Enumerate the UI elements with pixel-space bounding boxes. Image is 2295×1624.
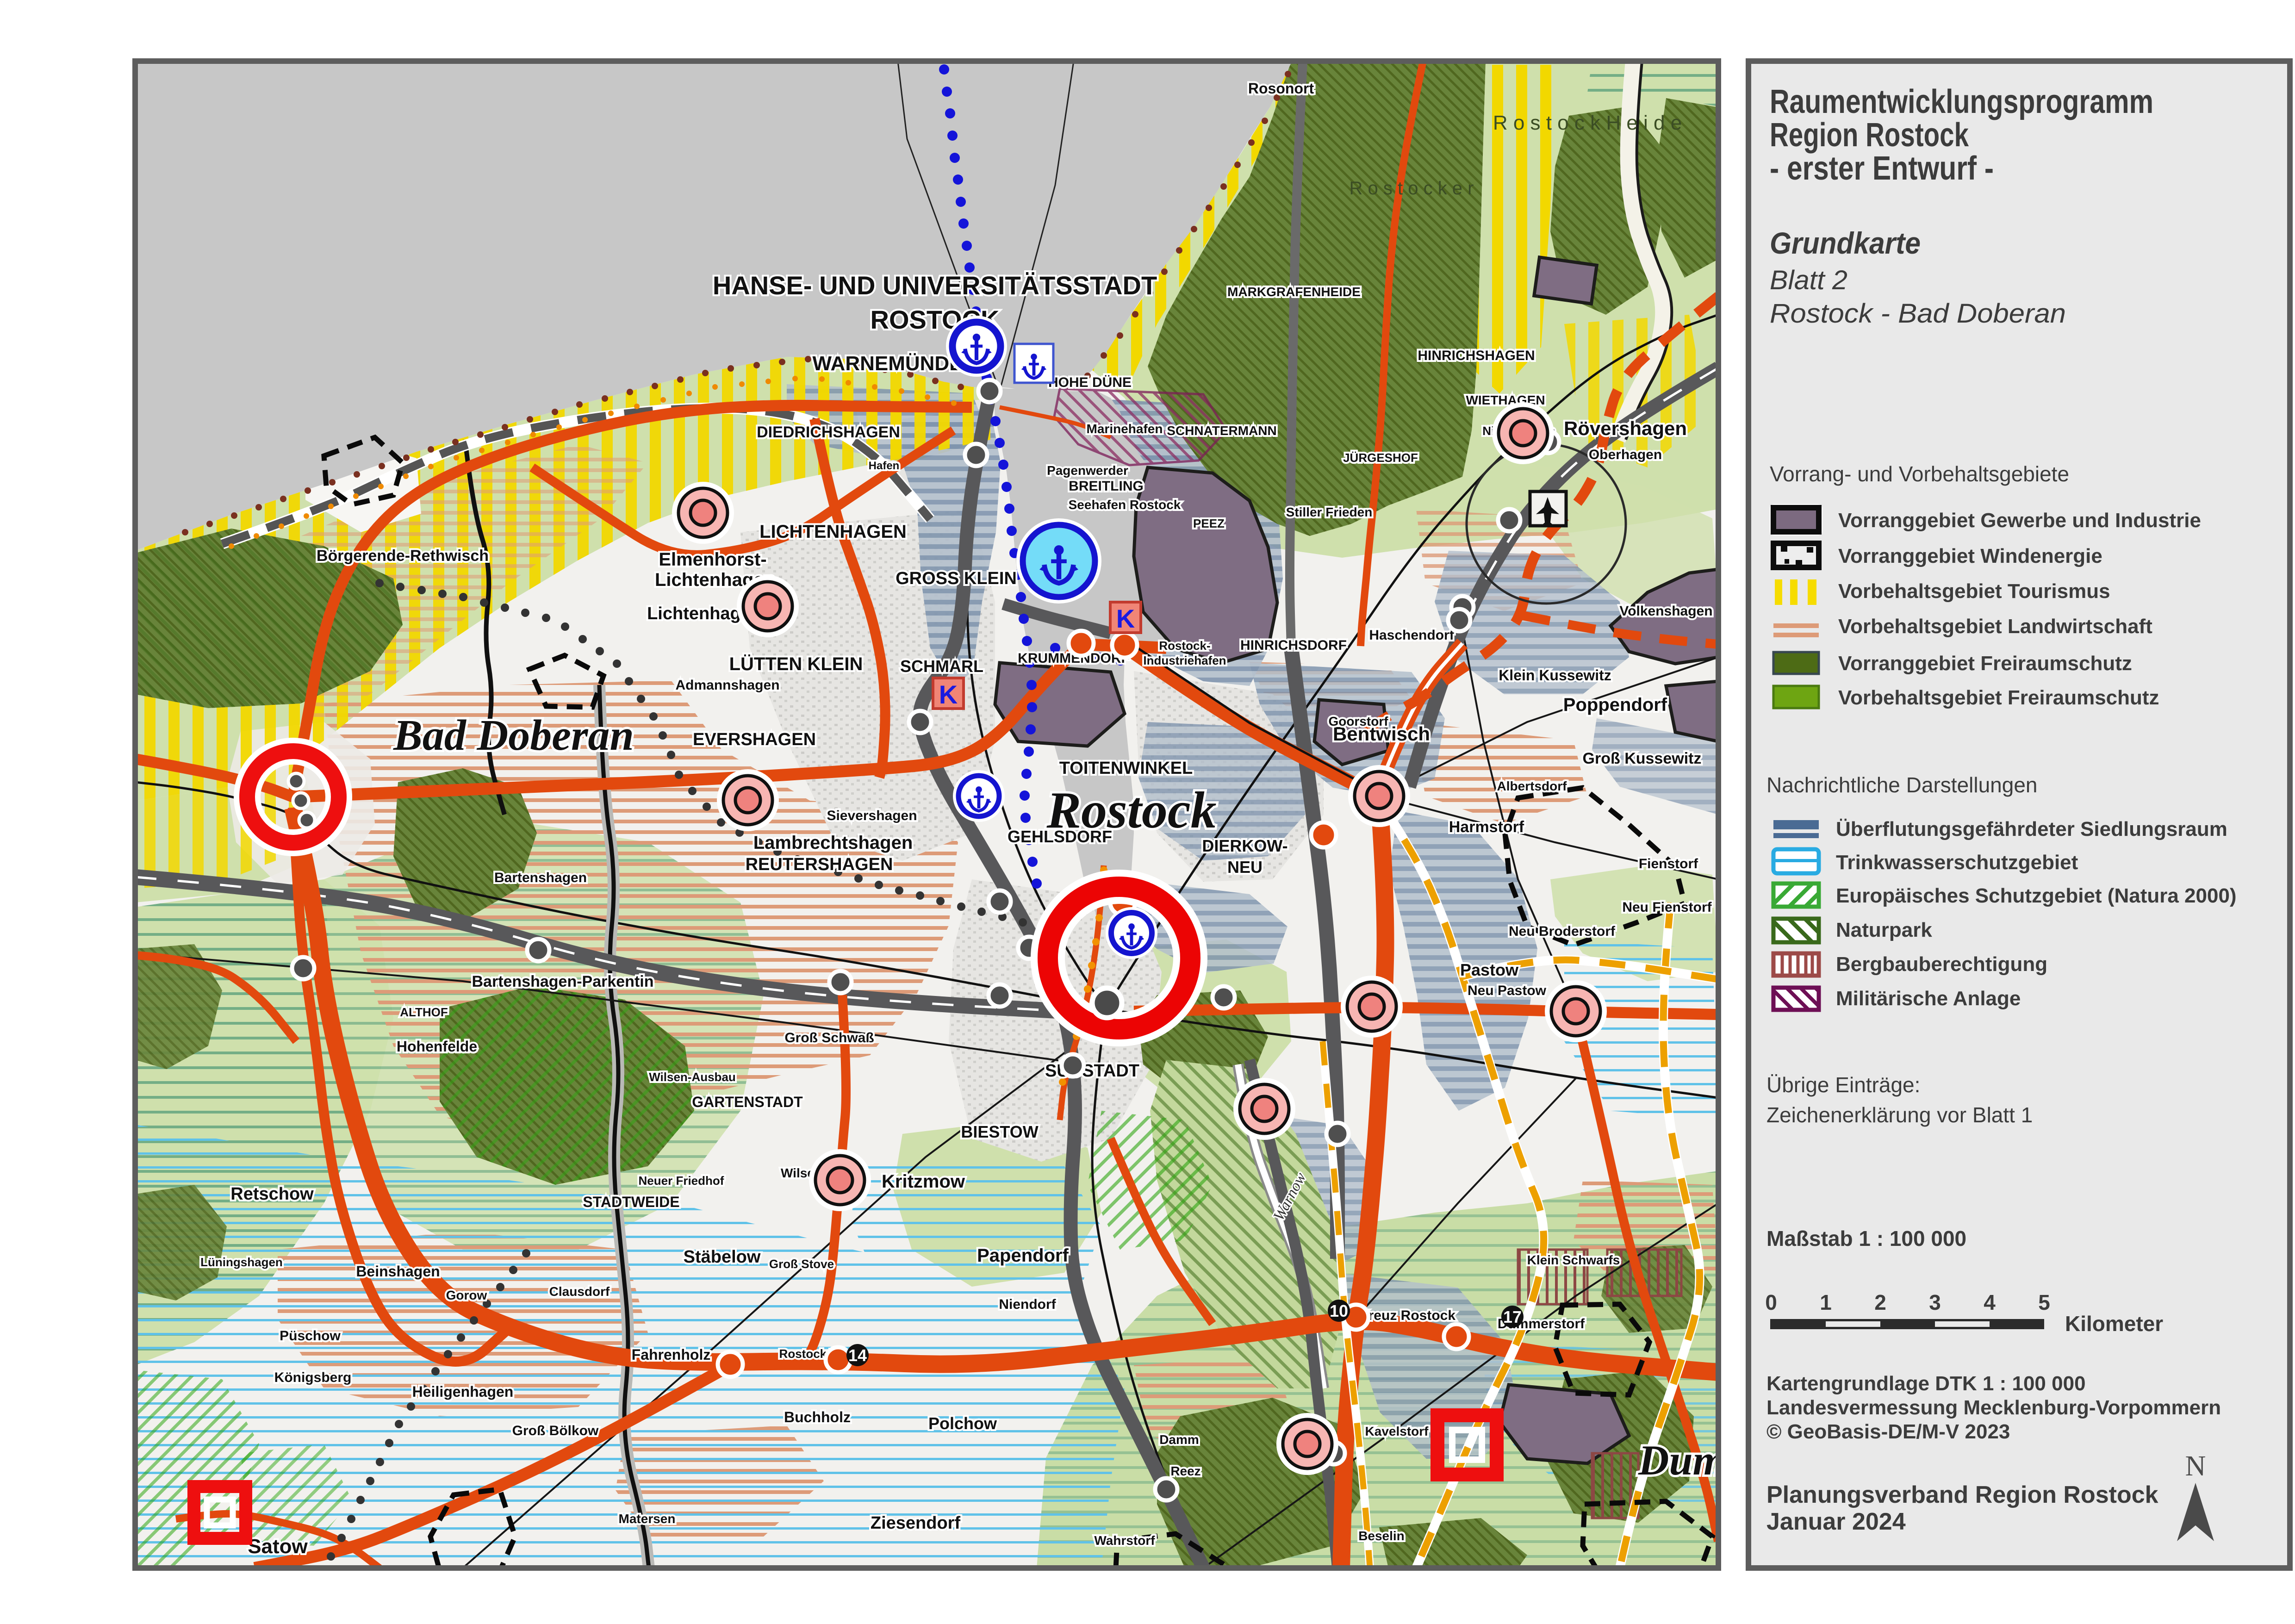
svg-text:BREITLING: BREITLING: [1069, 479, 1144, 494]
svg-text:ALTHOF: ALTHOF: [400, 1005, 448, 1019]
svg-text:0: 0: [1765, 1290, 1777, 1314]
svg-text:Vorbehaltsgebiet Freiraumschut: Vorbehaltsgebiet Freiraumschutz: [1838, 686, 2159, 709]
svg-text:Poppendorf: Poppendorf: [1563, 695, 1667, 715]
svg-text:Bartenshagen: Bartenshagen: [494, 870, 587, 885]
svg-text:Planungsverband Region Rostock: Planungsverband Region Rostock: [1766, 1481, 2158, 1508]
svg-text:2: 2: [1874, 1290, 1886, 1314]
svg-text:Fienstorf: Fienstorf: [1639, 856, 1698, 871]
svg-text:Januar 2024: Januar 2024: [1766, 1508, 1906, 1535]
svg-text:Kavelstorf: Kavelstorf: [1365, 1424, 1429, 1438]
svg-text:Haschendorf: Haschendorf: [1369, 628, 1454, 643]
svg-text:Ziesendorf: Ziesendorf: [871, 1513, 961, 1533]
svg-text:Reez: Reez: [1170, 1464, 1200, 1478]
svg-text:Industriehafen: Industriehafen: [1143, 653, 1226, 667]
svg-text:Stiller Frieden: Stiller Frieden: [1286, 505, 1373, 519]
svg-text:Militärische Anlage: Militärische Anlage: [1836, 987, 2021, 1010]
svg-text:Zeichenerklärung vor Blatt 1: Zeichenerklärung vor Blatt 1: [1766, 1103, 2033, 1127]
svg-text:HINRICHSDORF: HINRICHSDORF: [1240, 638, 1347, 653]
svg-text:Region Rostock: Region Rostock: [1770, 117, 1969, 154]
svg-text:LICHTENHAGEN: LICHTENHAGEN: [759, 522, 907, 542]
svg-text:Fahrenholz: Fahrenholz: [632, 1346, 711, 1363]
svg-text:Vorranggebiet Gewerbe und Indu: Vorranggebiet Gewerbe und Industrie: [1838, 509, 2201, 532]
svg-text:Albertsdorf: Albertsdorf: [1497, 779, 1567, 793]
svg-text:N: N: [2185, 1450, 2206, 1482]
svg-text:Polchow: Polchow: [928, 1414, 997, 1433]
svg-text:Wilsen-Ausbau: Wilsen-Ausbau: [649, 1070, 736, 1084]
svg-text:Kritzmow: Kritzmow: [882, 1171, 965, 1192]
svg-text:Papendorf: Papendorf: [977, 1245, 1069, 1266]
svg-text:Europäisches Schutzgebiet (Nat: Europäisches Schutzgebiet (Natura 2000): [1836, 884, 2237, 907]
svg-text:WARNEMÜNDE: WARNEMÜNDE: [812, 352, 963, 375]
svg-text:17: 17: [1503, 1307, 1522, 1326]
svg-text:- erster Entwurf -: - erster Entwurf -: [1770, 150, 1994, 187]
svg-text:Bergbauberechtigung: Bergbauberechtigung: [1836, 953, 2047, 976]
svg-text:Buchholz: Buchholz: [784, 1409, 851, 1425]
svg-text:Pagenwerder: Pagenwerder: [1047, 463, 1128, 478]
svg-text:GEHLSDORF: GEHLSDORF: [1008, 827, 1112, 846]
svg-text:NEU: NEU: [1227, 858, 1263, 877]
svg-text:Lüningshagen: Lüningshagen: [200, 1255, 283, 1269]
svg-text:Goorstorf: Goorstorf: [1328, 714, 1388, 728]
svg-text:Groß Kussewitz: Groß Kussewitz: [1583, 750, 1702, 767]
svg-text:10: 10: [1330, 1301, 1348, 1320]
svg-text:DIEDRICHSHAGEN: DIEDRICHSHAGEN: [757, 423, 900, 441]
svg-text:Seehafen Rostock: Seehafen Rostock: [1069, 498, 1181, 512]
svg-text:Marinehafen: Marinehafen: [1087, 422, 1163, 436]
svg-text:Landesvermessung Mecklenburg-V: Landesvermessung Mecklenburg-Vorpommern: [1766, 1396, 2221, 1419]
svg-text:K: K: [939, 680, 958, 709]
svg-text:© GeoBasis-DE/M-V 2023: © GeoBasis-DE/M-V 2023: [1766, 1420, 2010, 1443]
svg-text:HINRICHSHAGEN: HINRICHSHAGEN: [1418, 348, 1535, 363]
svg-text:Püschow: Püschow: [280, 1328, 341, 1344]
svg-text:5: 5: [2038, 1290, 2050, 1314]
svg-text:Vorbehaltsgebiet Tourismus: Vorbehaltsgebiet Tourismus: [1838, 580, 2110, 603]
svg-text:Vorbehaltsgebiet Landwirtschaf: Vorbehaltsgebiet Landwirtschaft: [1838, 615, 2152, 638]
svg-text:DIERKOW-: DIERKOW-: [1202, 836, 1287, 855]
svg-text:Pastow: Pastow: [1460, 960, 1519, 979]
svg-text:MARKGRAFENHEIDE: MARKGRAFENHEIDE: [1227, 285, 1361, 299]
svg-text:K: K: [1116, 604, 1135, 633]
svg-text:Rövershagen: Rövershagen: [1564, 417, 1687, 439]
svg-text:Elmenhorst-: Elmenhorst-: [659, 549, 766, 570]
svg-text:Rostock-: Rostock-: [1159, 639, 1210, 653]
svg-text:Hohenfelde: Hohenfelde: [397, 1038, 477, 1055]
svg-text:Übrige Einträge:: Übrige Einträge:: [1766, 1073, 1920, 1097]
svg-text:R o s t o c k e r: R o s t o c k e r: [1350, 178, 1474, 199]
svg-text:Klein Kussewitz: Klein Kussewitz: [1499, 667, 1611, 684]
svg-text:PEEZ: PEEZ: [1193, 516, 1225, 530]
svg-text:Kartengrundlage DTK 1 : 100 0: Kartengrundlage DTK 1 : 100 000: [1766, 1372, 2086, 1395]
svg-text:R o s t o c k H e i d e: R o s t o c k H e i d e: [1493, 112, 1682, 134]
svg-text:Raumentwicklungsprogramm: Raumentwicklungsprogramm: [1770, 83, 2153, 120]
svg-text:LÜTTEN KLEIN: LÜTTEN KLEIN: [729, 653, 863, 674]
svg-text:Vorrang- und Vorbehaltsgebiete: Vorrang- und Vorbehaltsgebiete: [1770, 462, 2069, 486]
svg-text:Bad Doberan: Bad Doberan: [393, 711, 634, 759]
svg-text:Naturpark: Naturpark: [1836, 919, 1932, 941]
svg-text:GARTENSTADT: GARTENSTADT: [692, 1094, 803, 1110]
svg-text:Sievershagen: Sievershagen: [827, 808, 917, 823]
svg-text:Bartenshagen-Parkentin: Bartenshagen-Parkentin: [472, 973, 654, 990]
svg-text:Neu Fienstorf: Neu Fienstorf: [1622, 900, 1712, 915]
svg-text:Kilometer: Kilometer: [2065, 1312, 2163, 1336]
svg-text:Groß Bölkow: Groß Bölkow: [512, 1423, 599, 1438]
svg-text:JÜRGESHOF: JÜRGESHOF: [1343, 451, 1418, 465]
svg-text:Clausdorf: Clausdorf: [549, 1284, 610, 1299]
svg-text:STADTWEIDE: STADTWEIDE: [583, 1194, 679, 1210]
svg-text:Neuer Friedhof: Neuer Friedhof: [639, 1174, 724, 1188]
svg-text:Nachrichtliche Darstellungen: Nachrichtliche Darstellungen: [1766, 773, 2038, 797]
svg-text:Blatt 2: Blatt 2: [1770, 265, 1847, 295]
svg-text:Beselin: Beselin: [1358, 1529, 1405, 1543]
svg-text:Rostock - Bad Doberan: Rostock - Bad Doberan: [1770, 299, 2066, 329]
svg-text:REUTERSHAGEN: REUTERSHAGEN: [746, 855, 893, 874]
svg-text:Grundkarte: Grundkarte: [1770, 226, 1921, 260]
svg-text:Beinshagen: Beinshagen: [356, 1263, 440, 1280]
svg-text:Volkenshagen: Volkenshagen: [1619, 604, 1712, 619]
svg-text:Maßstab 1 : 100 000: Maßstab 1 : 100 000: [1766, 1226, 1966, 1251]
svg-text:Retschow: Retschow: [230, 1184, 314, 1204]
svg-text:Oberhagen: Oberhagen: [1589, 447, 1662, 462]
svg-text:Überflutungsgefährdeter Siedlu: Überflutungsgefährdeter Siedlungsraum: [1836, 818, 2227, 840]
svg-text:Neu Pastow: Neu Pastow: [1468, 983, 1547, 998]
svg-text:Trinkwasserschutzgebiet: Trinkwasserschutzgebiet: [1836, 851, 2078, 874]
svg-text:3: 3: [1929, 1290, 1941, 1314]
svg-text:Groß Schwaß: Groß Schwaß: [784, 1030, 874, 1045]
svg-text:TOITENWINKEL: TOITENWINKEL: [1059, 759, 1193, 778]
svg-text:HANSE- UND UNIVERSITÄTSSTADT: HANSE- UND UNIVERSITÄTSSTADT: [713, 271, 1157, 300]
svg-text:Niendorf: Niendorf: [999, 1297, 1056, 1312]
svg-text:BIESTOW: BIESTOW: [961, 1122, 1038, 1141]
svg-text:1: 1: [1820, 1290, 1832, 1314]
svg-text:Königsberg: Königsberg: [274, 1370, 352, 1385]
svg-text:Neu Broderstorf: Neu Broderstorf: [1509, 924, 1616, 939]
svg-text:Damm: Damm: [1159, 1432, 1199, 1447]
svg-text:Satow: Satow: [248, 1535, 308, 1558]
svg-text:SÜDSTADT: SÜDSTADT: [1045, 1061, 1139, 1081]
svg-text:4: 4: [1984, 1290, 1996, 1314]
svg-text:Wahrstorf: Wahrstorf: [1094, 1533, 1155, 1548]
svg-text:14: 14: [848, 1346, 867, 1365]
svg-text:Matersen: Matersen: [619, 1512, 676, 1526]
svg-text:SCHMARL: SCHMARL: [900, 657, 983, 676]
svg-text:Rosonort: Rosonort: [1248, 80, 1314, 97]
svg-text:Vorranggebiet Windenergie: Vorranggebiet Windenergie: [1838, 545, 2102, 567]
svg-text:Vorranggebiet Freiraumschutz: Vorranggebiet Freiraumschutz: [1838, 652, 2132, 675]
svg-text:Hafen: Hafen: [869, 460, 900, 472]
svg-text:EVERSHAGEN: EVERSHAGEN: [693, 730, 816, 749]
svg-text:Gorow: Gorow: [446, 1288, 487, 1302]
svg-text:Kreuz Rostock: Kreuz Rostock: [1358, 1308, 1455, 1323]
svg-text:SCHNATERMANN: SCHNATERMANN: [1167, 423, 1276, 438]
svg-text:Stäbelow: Stäbelow: [684, 1247, 761, 1267]
svg-text:Lambrechtshagen: Lambrechtshagen: [753, 833, 913, 853]
svg-text:GROSS KLEIN: GROSS KLEIN: [896, 569, 1017, 588]
svg-text:HOHE DÜNE: HOHE DÜNE: [1048, 375, 1132, 390]
svg-text:Harmstorf: Harmstorf: [1449, 818, 1524, 836]
svg-text:Lichtenhage: Lichtenhage: [647, 604, 751, 623]
svg-text:Börgerende-Rethwisch: Börgerende-Rethwisch: [317, 547, 489, 565]
svg-text:Admannshagen: Admannshagen: [675, 678, 779, 693]
svg-text:Groß Stove: Groß Stove: [769, 1257, 834, 1271]
svg-text:Klein Schwarfs: Klein Schwarfs: [1527, 1253, 1620, 1267]
svg-text:Heiligenhagen: Heiligenhagen: [412, 1383, 514, 1400]
